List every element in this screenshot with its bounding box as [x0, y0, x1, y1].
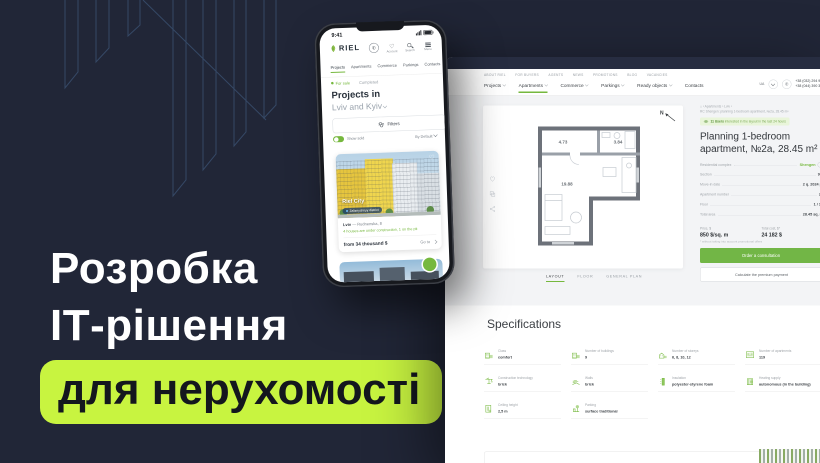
phone-mockup: 9:41 RIEL ✆ ♡ Account [314, 24, 446, 288]
phone-frame: 9:41 RIEL ✆ ♡ Account [314, 19, 455, 287]
link-vacancies[interactable]: VACANCIES [647, 74, 668, 78]
page-content: N [445, 96, 820, 306]
show-sold-toggle[interactable]: Show sold [333, 135, 364, 142]
phone-nav-projects[interactable]: Projects [330, 65, 345, 73]
favorite-icon[interactable] [489, 176, 496, 183]
phone-nav: Projects Apartments Commerce Parkings Co… [330, 62, 438, 73]
link-news[interactable]: NEWS [573, 74, 584, 78]
go-to-link[interactable]: Go to [420, 239, 436, 244]
leaf-icon [330, 44, 337, 53]
signal-icon [416, 30, 422, 35]
link-promotions[interactable]: PROMOTIONS [593, 74, 618, 78]
details-list: Residential complex Shengeni Section 9.2… [700, 162, 820, 222]
spec-buildings: Number of buildings9 [571, 350, 648, 365]
language-selector[interactable]: UA [760, 82, 765, 86]
spec-parking: Parkingsurface traditional [571, 404, 648, 419]
eye-icon [704, 120, 709, 124]
pin-icon [346, 210, 348, 212]
promo-banner: { "hero": { "line1": "Розробка", "line2"… [0, 0, 820, 463]
chevron-down-icon [433, 133, 437, 137]
ceiling-height-icon [484, 404, 494, 414]
phone-nav-apartments[interactable]: Apartments [351, 64, 372, 72]
detail-row-complex: Residential complex Shengeni [700, 162, 820, 172]
nav-apartments[interactable]: Apartments [519, 83, 548, 93]
spec-insulation: Insulationpolyester-styrene foam [658, 377, 735, 392]
account-button[interactable]: ♡ Account [385, 42, 399, 53]
interest-notice: 11 Users interested in the layout in the… [700, 118, 789, 126]
project-photo: ♡ Riel City Zaliznychnyy district [336, 151, 441, 219]
room-area-bath: 3.84 [614, 140, 623, 145]
divider [321, 73, 443, 78]
browser-titlebar [445, 57, 820, 69]
specifications-grid: Classcomfort Number of buildings9 Number… [484, 350, 820, 419]
order-consultation-button[interactable]: Order a consultation [700, 248, 820, 263]
price-note: * without taking into account promotiona… [700, 241, 820, 244]
search-button[interactable]: Search [403, 41, 417, 52]
chevron-down-icon [383, 104, 387, 108]
link-blog[interactable]: BLOG [627, 74, 637, 78]
boiler-icon [745, 377, 755, 387]
account-icon[interactable] [768, 79, 778, 89]
spec-heating: Heating supplyautonomous (in the buildin… [745, 377, 820, 392]
chevron-down-icon [621, 83, 625, 87]
spec-technology: Construction technologybrick [484, 377, 561, 392]
tab-layout[interactable]: LAYOUT [546, 274, 564, 282]
toggle-switch [333, 136, 344, 142]
spec-class: Classcomfort [484, 350, 561, 365]
svg-text:N: N [660, 111, 664, 117]
heart-icon: ♡ [389, 43, 395, 49]
insulation-icon [658, 377, 668, 387]
breadcrumb-page: RC Shengen: planning 1-bedroom apartment… [700, 109, 820, 114]
battery-icon [423, 30, 432, 35]
apartments-icon [745, 350, 755, 360]
for-sale-toggle[interactable]: For sale [331, 81, 350, 86]
project-card[interactable]: ♡ Riel City Zaliznychnyy district Lviv —… [336, 151, 442, 253]
spec-apartments: Number of apartments119 [745, 350, 820, 365]
site-top-links: ABOUT RIEL FOR BUYERS AGENTS NEWS PROMOT… [484, 74, 668, 78]
filter-icon [378, 122, 384, 127]
detail-row-apartment-number: Apartment number 2a [700, 192, 820, 202]
phone-notch [356, 21, 404, 32]
city-selector[interactable]: Lviv and Kyiv [332, 101, 387, 113]
project-price: from 34 thousand $ [344, 241, 388, 248]
specifications-title: Specifications [487, 318, 561, 332]
hero-line-2: ІТ-рішення [50, 301, 288, 351]
apartment-details-panel: ⌂ › Apartments › Lviv › RC Shengen: plan… [700, 105, 820, 282]
room-area-living: 19.88 [561, 182, 573, 187]
phone-nav-contacts[interactable]: Contacts [424, 62, 440, 70]
site-main-nav: Projects Apartments Commerce Parkings Re… [484, 83, 704, 93]
completed-toggle[interactable]: Completed [359, 80, 378, 85]
total-cost-label: Total cost, $* [762, 227, 820, 231]
share-icon[interactable] [489, 206, 496, 213]
phone-screen: 9:41 RIEL ✆ ♡ Account [319, 25, 450, 283]
sort-selector[interactable]: By Default [415, 133, 437, 139]
status-time: 9:41 [331, 32, 342, 38]
price-label: Price, $ [700, 227, 762, 231]
spec-walls: Wallsbrick [571, 377, 648, 392]
menu-button[interactable]: Menu [421, 41, 435, 52]
floorplan-drawing: 4.73 3.84 19.88 [524, 120, 649, 252]
nav-commerce[interactable]: Commerce [560, 83, 588, 89]
spec-storeys: Number of storeys6, 8, 10, 12 [658, 350, 735, 365]
hero-line-1: Розробка [50, 244, 258, 294]
project-name: Riel City [342, 198, 364, 205]
construction-status: 4 houses are under construction, 1 on th… [343, 226, 436, 234]
price-per-sqm: 850 $/sq. m [700, 232, 762, 238]
spec-ceiling: Ceiling height2,5 m [484, 404, 561, 419]
filters-button[interactable]: Filters [332, 114, 445, 133]
calculate-payment-button[interactable]: Calculate the premium payment [700, 268, 820, 282]
call-button[interactable]: ✆ [367, 43, 381, 54]
phone-nav-commerce[interactable]: Commerce [377, 63, 397, 71]
phone-nav-parkings[interactable]: Parkings [403, 62, 419, 70]
building-icon [484, 350, 494, 360]
riel-logo[interactable]: RIEL [330, 43, 360, 53]
detail-row-movein: Move-in date 2 q. 2024 p. [700, 182, 820, 192]
room-area-hall: 4.73 [559, 140, 568, 145]
chevron-down-icon [585, 83, 589, 87]
nav-ready-objects[interactable]: Ready objects [637, 83, 672, 89]
next-section-box [484, 452, 762, 463]
chevron-down-icon [669, 83, 673, 87]
tab-floor[interactable]: FLOOR [577, 274, 593, 282]
plan-actions [489, 176, 496, 213]
wall-icon [571, 377, 581, 387]
storeys-icon [658, 350, 668, 360]
status-icons [416, 30, 433, 36]
nav-projects[interactable]: Projects [484, 83, 506, 89]
chevron-right-icon [433, 240, 437, 244]
tab-general-plan[interactable]: GENERAL PLAN [606, 274, 642, 282]
nav-contacts[interactable]: Contacts [685, 83, 704, 89]
link-about-riel[interactable]: ABOUT RIEL [484, 74, 506, 78]
green-dot-icon [331, 82, 334, 85]
compare-icon[interactable] [489, 191, 496, 198]
search-icon [407, 43, 412, 48]
buildings-icon [571, 350, 581, 360]
nav-parkings[interactable]: Parkings [601, 83, 624, 89]
chevron-down-icon [503, 83, 507, 87]
parking-icon [571, 404, 581, 414]
phone-heading: Projects in [331, 89, 380, 102]
floorplan-card: N [483, 106, 683, 269]
detail-row-floor: Floor 1 / 10 [700, 202, 820, 212]
compass: N [659, 109, 677, 127]
price-block: Price, $ 850 $/sq. m Total cost, $* 24 1… [700, 227, 820, 238]
detail-row-section: Section 9.2 [700, 172, 820, 182]
background-buildings-lineart [30, 0, 320, 230]
phone-icon: ✆ [369, 43, 379, 53]
specifications-section: Specifications Classcomfort Number of bu… [445, 306, 820, 463]
link-agents[interactable]: AGENTS [548, 74, 563, 78]
link-for-buyers[interactable]: FOR BUYERS [515, 74, 539, 78]
complex-link[interactable]: Shengen [800, 163, 816, 168]
total-cost-value: 24 182 $ [762, 232, 820, 238]
phone-number-2[interactable]: +38 (044) 390 30 30 [795, 84, 820, 89]
chevron-down-icon [544, 83, 548, 87]
menu-icon [425, 42, 431, 43]
contact-phones: +38 (032) 294 94 94 +38 (044) 390 30 30 [795, 79, 820, 89]
crane-icon [484, 377, 494, 387]
phone-icon[interactable]: ✆ [782, 79, 792, 89]
page-title: Planning 1-bedroom apartment, №2a, 28.45… [700, 131, 820, 156]
plan-view-tabs: LAYOUT FLOOR GENERAL PLAN [546, 274, 642, 282]
favorite-icon[interactable]: ♡ [429, 153, 435, 161]
hero-highlight: для нерухомості [40, 360, 442, 424]
browser-window: ABOUT RIEL FOR BUYERS AGENTS NEWS PROMOT… [445, 57, 820, 463]
detail-row-total-area: Total area 28.45 sq. m [700, 212, 820, 222]
decorative-stripes [759, 449, 820, 463]
chevron-down-icon [771, 82, 775, 86]
